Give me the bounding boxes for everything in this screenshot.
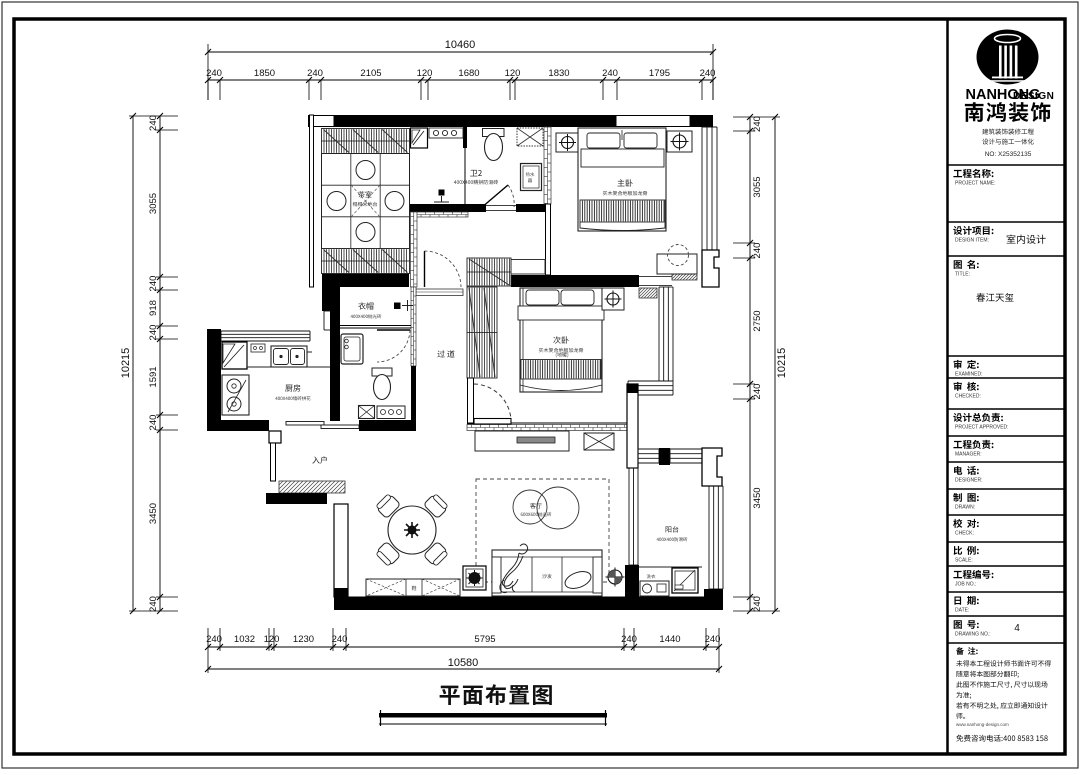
svg-text:1680: 1680 — [458, 68, 479, 79]
svg-text:240: 240 — [148, 276, 159, 292]
svg-text:4: 4 — [1014, 623, 1020, 634]
svg-text:240: 240 — [700, 68, 716, 79]
svg-text:1591: 1591 — [148, 366, 159, 387]
svg-text:240: 240 — [332, 634, 348, 645]
svg-text:240: 240 — [148, 596, 159, 612]
svg-text:240: 240 — [206, 634, 222, 645]
svg-text:120: 120 — [264, 634, 280, 645]
svg-text:240: 240 — [752, 116, 763, 132]
svg-text:1230: 1230 — [293, 634, 314, 645]
svg-text:DATE:: DATE: — [955, 608, 969, 614]
svg-text:DESIGN ITEM:: DESIGN ITEM: — [955, 238, 989, 244]
svg-text:PROJECT APPROVED:: PROJECT APPROVED: — [955, 425, 1009, 431]
svg-text:NO: X25352135: NO: X25352135 — [985, 151, 1032, 158]
svg-text:DRAWN:: DRAWN: — [955, 505, 975, 511]
svg-text:1795: 1795 — [649, 68, 670, 79]
svg-text:SCALE:: SCALE: — [955, 558, 973, 564]
svg-text:2105: 2105 — [360, 68, 381, 79]
svg-text:CHECKED:: CHECKED: — [955, 394, 981, 400]
svg-text:2750: 2750 — [752, 310, 763, 331]
svg-text:1032: 1032 — [234, 634, 255, 645]
svg-text:PROJECT NAME:: PROJECT NAME: — [955, 181, 995, 187]
svg-text:240: 240 — [752, 596, 763, 612]
svg-text:EXAMINED:: EXAMINED: — [955, 372, 983, 378]
svg-text:MANAGER:: MANAGER: — [955, 452, 982, 458]
svg-text:240: 240 — [621, 634, 637, 645]
svg-text:1850: 1850 — [254, 68, 275, 79]
svg-text:DRAWING NO.:: DRAWING NO.: — [955, 632, 991, 638]
svg-text:1830: 1830 — [548, 68, 569, 79]
svg-text:DESIGNER:: DESIGNER: — [955, 478, 983, 484]
svg-text:1440: 1440 — [659, 634, 680, 645]
svg-text:10215: 10215 — [776, 348, 788, 379]
svg-text:240: 240 — [148, 415, 159, 431]
svg-text:240: 240 — [148, 325, 159, 341]
svg-text:3450: 3450 — [148, 503, 159, 524]
svg-text:TITLE:: TITLE: — [955, 272, 970, 278]
svg-text:240: 240 — [705, 634, 721, 645]
svg-text:120: 120 — [417, 68, 433, 79]
svg-text:CHECK:: CHECK: — [955, 531, 974, 537]
svg-text:3055: 3055 — [148, 193, 159, 214]
svg-text:10580: 10580 — [448, 657, 479, 669]
svg-text:240: 240 — [307, 68, 323, 79]
svg-text:3450: 3450 — [752, 487, 763, 508]
svg-text:240: 240 — [752, 243, 763, 259]
svg-text:120: 120 — [505, 68, 521, 79]
svg-text:240: 240 — [602, 68, 618, 79]
svg-text:10460: 10460 — [445, 39, 476, 51]
svg-text:240: 240 — [752, 384, 763, 400]
svg-text:10215: 10215 — [120, 348, 132, 379]
svg-text:3055: 3055 — [752, 176, 763, 197]
svg-text:5795: 5795 — [474, 634, 495, 645]
svg-text:240: 240 — [148, 115, 159, 131]
svg-text:JOB NO.:: JOB NO.: — [955, 582, 976, 588]
svg-text:918: 918 — [148, 300, 159, 316]
svg-text:240: 240 — [206, 68, 222, 79]
svg-text:www.nanhong-design.com: www.nanhong-design.com — [956, 722, 1009, 727]
svg-text:DESIGN: DESIGN — [1013, 91, 1054, 102]
